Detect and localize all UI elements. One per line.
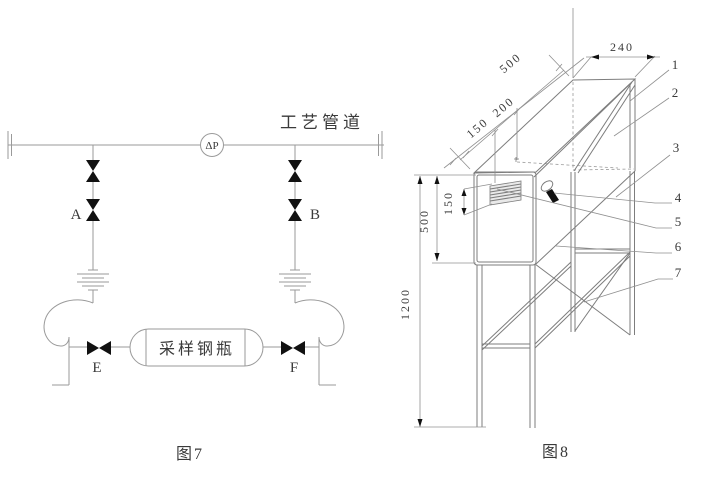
valve-right-upper bbox=[288, 160, 302, 182]
valve-left-upper bbox=[86, 160, 100, 182]
drawing-canvas: 工艺管道 ΔP A B E F 采样钢瓶 图7 bbox=[0, 0, 712, 479]
support-stand bbox=[477, 171, 635, 428]
figure7-caption: 图7 bbox=[176, 446, 204, 463]
technical-drawing: 工艺管道 ΔP A B E F 采样钢瓶 图7 bbox=[0, 0, 712, 479]
dim-1200-value: 1200 bbox=[398, 288, 412, 320]
callout-6: 6 bbox=[675, 239, 682, 254]
figure8-caption: 图8 bbox=[542, 444, 570, 461]
coil-right bbox=[279, 270, 311, 290]
valve-a-label: A bbox=[71, 207, 82, 223]
figure7-piping-diagram: 工艺管道 ΔP A B E F 采样钢瓶 图7 bbox=[8, 113, 384, 463]
valve-f-label: F bbox=[290, 360, 298, 376]
valve-a bbox=[86, 199, 100, 221]
callout-4: 4 bbox=[675, 190, 682, 205]
dp-instrument-label: ΔP bbox=[205, 140, 218, 152]
valve-e-label: E bbox=[92, 360, 101, 376]
door-handle bbox=[539, 179, 559, 203]
dimension-depth-segments: 500 150 200 bbox=[444, 8, 584, 183]
callout-2: 2 bbox=[672, 85, 679, 100]
sample-cylinder-label: 采样钢瓶 bbox=[159, 340, 235, 358]
dimension-500-height: 500 bbox=[417, 176, 476, 263]
louver-grille bbox=[490, 181, 521, 205]
dim-240-value: 240 bbox=[610, 40, 634, 54]
valve-b bbox=[288, 199, 302, 221]
callout-1: 1 bbox=[672, 57, 679, 72]
callout-5: 5 bbox=[675, 214, 682, 229]
dim-500-height-value: 500 bbox=[417, 209, 431, 233]
dimension-150-louver: 150 bbox=[441, 184, 492, 215]
valve-e bbox=[87, 341, 111, 355]
callout-3: 3 bbox=[673, 140, 680, 155]
pipeline-label: 工艺管道 bbox=[280, 113, 364, 132]
coil-left bbox=[77, 270, 109, 290]
dim-150-louver-value: 150 bbox=[441, 191, 455, 215]
valve-b-label: B bbox=[310, 207, 320, 223]
dimension-240: 240 bbox=[573, 40, 660, 78]
dim-500-depth-value: 500 bbox=[497, 50, 524, 76]
callout-7: 7 bbox=[675, 265, 682, 280]
dim-200-value: 200 bbox=[490, 94, 517, 120]
valve-f bbox=[281, 341, 305, 355]
figure8-installation-drawing: 240 500 150 200 500 bbox=[398, 8, 682, 461]
